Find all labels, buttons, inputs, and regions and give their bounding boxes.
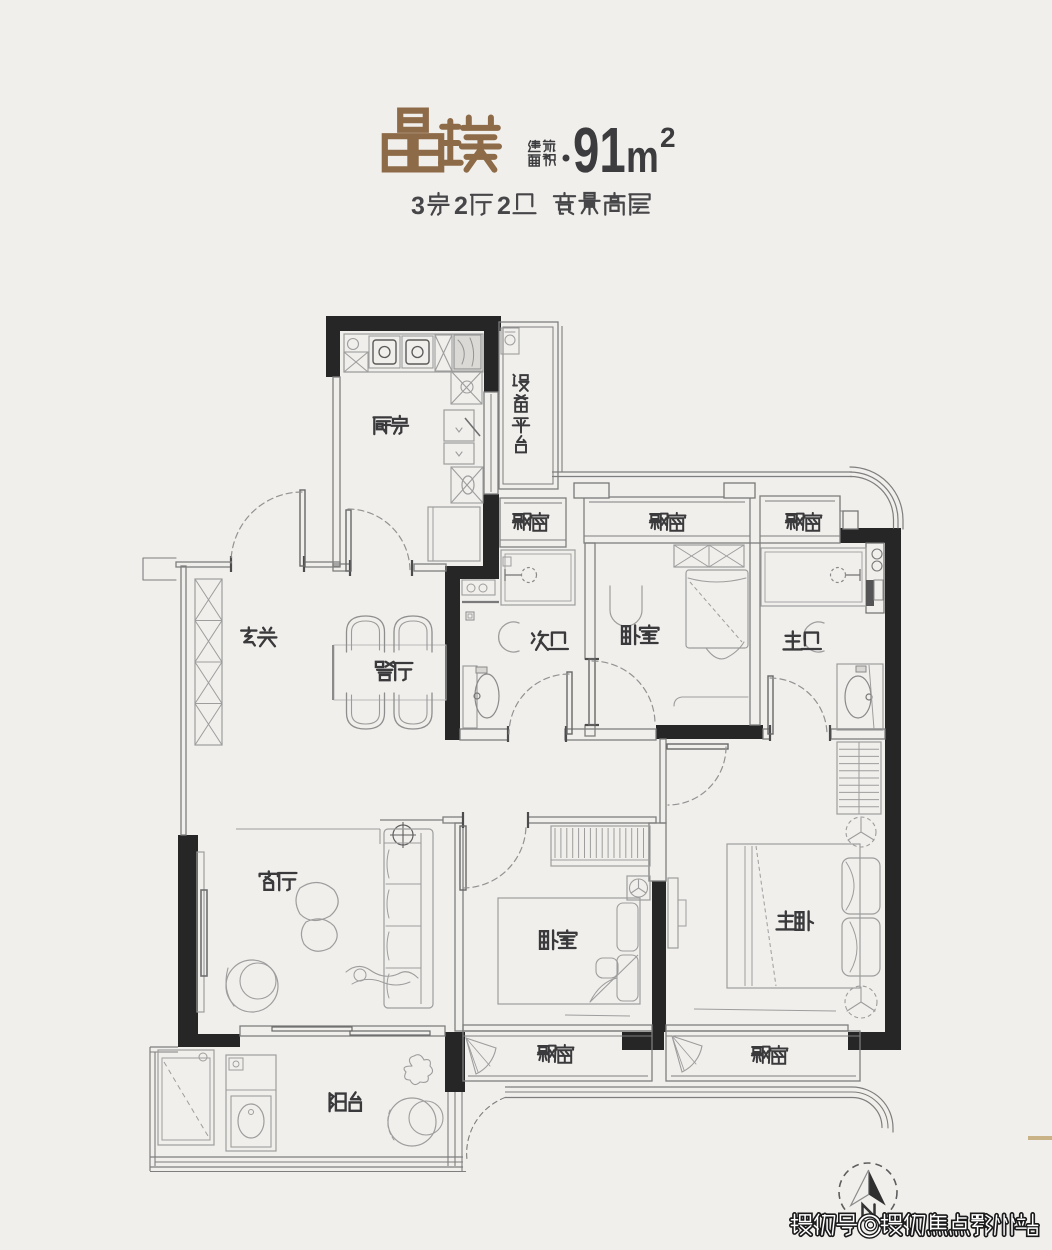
svg-text:m: m (626, 131, 659, 182)
svg-text:91: 91 (573, 114, 626, 186)
svg-text:3: 3 (411, 192, 425, 220)
svg-text:2: 2 (454, 192, 468, 220)
svg-text:2: 2 (660, 122, 676, 153)
svg-text:2: 2 (497, 192, 511, 220)
